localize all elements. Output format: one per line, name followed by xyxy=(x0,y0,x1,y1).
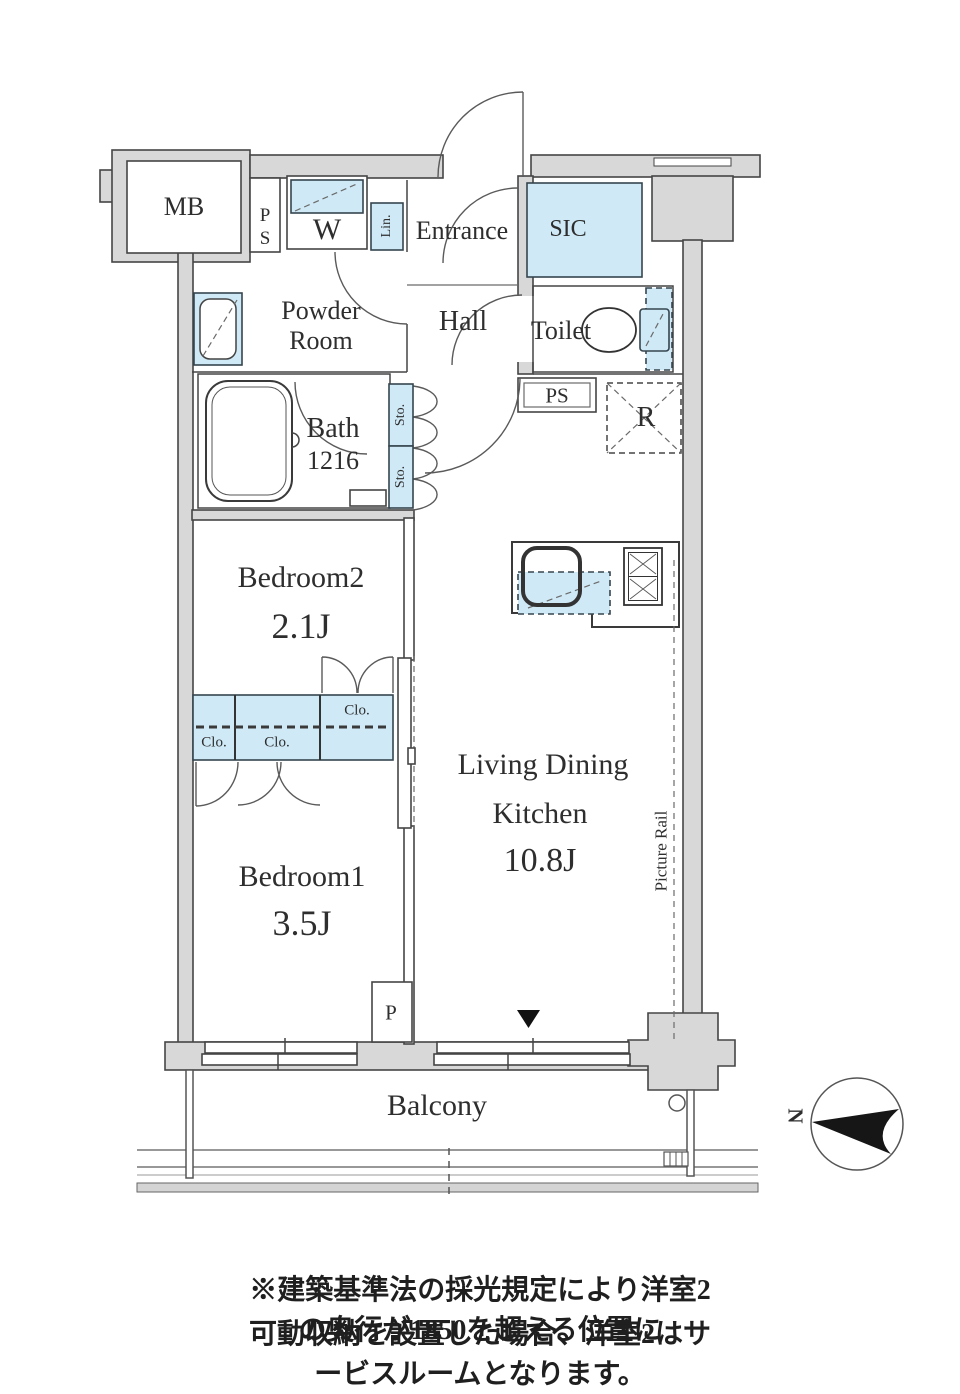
label-storage-2: Sto. xyxy=(394,466,408,488)
floor-plan-graphics xyxy=(0,0,960,1394)
entrance-door xyxy=(438,92,523,177)
label-ps-mid: PS xyxy=(545,386,568,407)
label-bath-size: 1216 xyxy=(307,448,359,474)
washbasin-icon xyxy=(194,293,242,365)
label-ldk-2: Kitchen xyxy=(493,799,588,829)
footnote-line-2: 可動収納を設置した場合、洋室2はサービスルームとなります。 xyxy=(240,1312,720,1392)
sliding-door xyxy=(398,656,415,830)
label-storage-1: Sto. xyxy=(394,404,408,426)
label-bedroom1-size: 3.5J xyxy=(272,905,331,941)
floor-plan: MB PS W Lin. Entrance SIC Powder Room Ha… xyxy=(0,0,960,1394)
label-closet-2: Clo. xyxy=(264,736,289,751)
label-entrance: Entrance xyxy=(416,218,508,244)
label-washer: W xyxy=(313,215,341,245)
label-bedroom2-size: 2.1J xyxy=(271,608,330,644)
compass xyxy=(811,1078,903,1170)
label-closet-3: Clo. xyxy=(344,704,369,719)
label-toilet: Toilet xyxy=(531,318,591,344)
label-bedroom1: Bedroom1 xyxy=(239,862,366,892)
label-powder-2: Room xyxy=(289,328,353,354)
label-linen: Lin. xyxy=(380,215,394,238)
label-ldk-size: 10.8J xyxy=(504,844,577,878)
label-fridge: R xyxy=(637,404,656,432)
storage-boxes xyxy=(389,384,413,508)
label-pipe: P xyxy=(385,1003,397,1024)
toilet-icon xyxy=(582,288,672,370)
label-ps-top: PS xyxy=(256,205,275,251)
balcony-dividers xyxy=(186,1070,694,1178)
label-hall: Hall xyxy=(439,308,487,336)
label-picture-rail: Picture Rail xyxy=(653,811,670,892)
compass-north-label: N xyxy=(785,1108,806,1123)
label-mb: MB xyxy=(164,194,204,220)
label-sic: SIC xyxy=(549,217,586,241)
position-marker xyxy=(517,1010,540,1028)
stove-icon xyxy=(624,548,662,605)
label-powder-1: Powder xyxy=(281,298,360,324)
label-bedroom2: Bedroom2 xyxy=(238,563,365,593)
label-closet-1: Clo. xyxy=(201,736,226,751)
label-ldk-1: Living Dining xyxy=(458,750,629,780)
label-balcony: Balcony xyxy=(387,1091,487,1121)
label-bath: Bath xyxy=(307,415,360,443)
